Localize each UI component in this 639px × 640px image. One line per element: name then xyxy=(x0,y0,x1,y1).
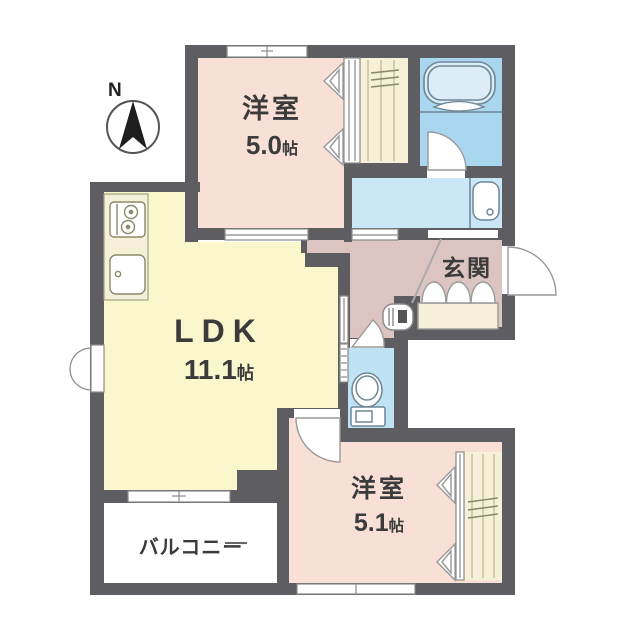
stove-icon xyxy=(110,202,145,237)
ldk-balcony-window xyxy=(128,491,230,502)
wall-hatch-strip xyxy=(340,344,348,382)
north-label: N xyxy=(108,80,138,102)
floor-plan: 洋室 5.0帖 LDK 11.1帖 洋室 5.1帖 玄関 バルコニー N xyxy=(0,0,639,640)
bedroom-bottom-closet-track xyxy=(456,452,464,580)
washroom-sliding-door xyxy=(352,229,398,240)
hand-basin-icon xyxy=(383,304,413,330)
entrance-label: 玄関 xyxy=(417,249,517,283)
balcony-label: バルコニー xyxy=(116,531,266,560)
bedroom-bottom-door-opening xyxy=(294,409,340,418)
entrance-step-strip xyxy=(428,230,498,238)
ldk-left-window xyxy=(70,345,104,392)
bedroom-top-closet-track xyxy=(344,58,360,163)
north-arrow-icon xyxy=(107,101,159,153)
sink-icon xyxy=(110,255,145,294)
bedroom-top-sliding-door xyxy=(225,229,308,240)
bedroom-top-window xyxy=(227,46,307,57)
ldk-hall-sliding-door xyxy=(340,296,348,343)
hallway-nook-floor xyxy=(307,240,348,253)
toilet-icon xyxy=(351,373,385,426)
shoe-cabinet-door-icons xyxy=(422,282,495,303)
shoe-cabinet xyxy=(418,282,498,329)
floor-plan-drawing xyxy=(0,0,639,640)
bedroom-top-closet-floor xyxy=(356,58,408,163)
bedroom-bottom-window xyxy=(297,584,415,594)
